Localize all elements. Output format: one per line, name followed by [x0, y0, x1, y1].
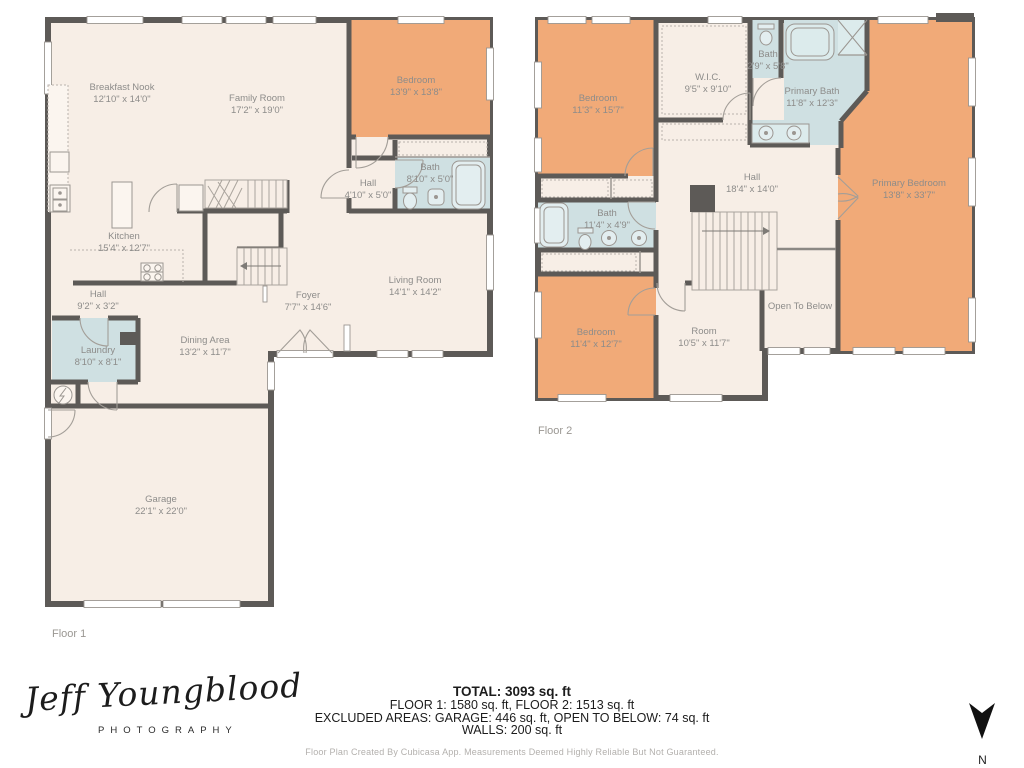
label-primary-bedroom: Primary Bedroom [872, 178, 946, 189]
label-laundry-dims: 8'10" x 8'1" [75, 357, 122, 368]
label-primary-bath: Primary Bath [785, 86, 840, 97]
label-breakfast-nook: Breakfast Nook [90, 82, 155, 93]
logo-subtitle: PHOTOGRAPHY [98, 725, 256, 736]
label-hall-f2-dims: 18'4" x 14'0" [726, 184, 778, 195]
label-bath-f1: Bath [420, 162, 440, 173]
compass-label: N [955, 753, 1010, 767]
label-family-room: Family Room [229, 93, 285, 104]
floor2-stairs [692, 212, 777, 290]
laundry-wall-notch [120, 332, 138, 345]
floor1-caption: Floor 1 [52, 628, 86, 640]
label-hall-f1: Hall [360, 178, 376, 189]
label-bedroom-tl-dims: 11'3" x 15'7" [572, 105, 623, 116]
label-dining-area-dims: 13'2" x 11'7" [179, 347, 230, 358]
photographer-logo: Jeff Youngblood PHOTOGRAPHY [26, 680, 256, 760]
label-bedroom-bl-dims: 11'4" x 12'7" [570, 339, 621, 350]
label-living-room: Living Room [389, 275, 442, 286]
label-breakfast-nook-dims: 12'10" x 14'0" [93, 94, 150, 105]
compass: N [955, 698, 1010, 760]
label-bath-f2-dims: 11'4" x 4'9" [584, 220, 630, 231]
label-hall2-f1: Hall [90, 289, 106, 300]
label-wic-dims: 9'5" x 9'10" [685, 84, 732, 95]
chimney-block [936, 13, 974, 22]
floor2-plan: Bedroom 11'3" x 15'7" W.I.C. 9'5" x 9'10… [535, 13, 976, 437]
label-family-room-dims: 17'2" x 19'0" [231, 105, 283, 116]
label-dining-area: Dining Area [180, 335, 230, 346]
floor1-plan: Breakfast Nook 12'10" x 14'0" Family Roo… [45, 17, 494, 641]
label-primary-bath-dims: 11'8" x 12'3" [786, 98, 837, 109]
label-bedroom-f1: Bedroom [397, 75, 436, 86]
label-hall-f2: Hall [744, 172, 760, 183]
label-wic: W.I.C. [695, 72, 721, 83]
label-bath-small-dims: 2'9" x 5'8" [747, 61, 789, 72]
floorplan-drawing: Breakfast Nook 12'10" x 14'0" Family Roo… [0, 0, 1024, 768]
label-room: Room [691, 326, 716, 337]
label-bedroom-bl: Bedroom [577, 327, 616, 338]
stair-newel-block [690, 185, 715, 212]
floorplan-page: Breakfast Nook 12'10" x 14'0" Family Roo… [0, 0, 1024, 768]
label-hall-f1-dims: 4'10" x 5'0" [345, 190, 392, 201]
label-garage-dims: 22'1" x 22'0" [135, 506, 187, 517]
north-arrow-icon [955, 698, 1010, 746]
label-kitchen-dims: 15'4" x 12'7" [98, 243, 150, 254]
label-bath-f2: Bath [597, 208, 617, 219]
label-living-room-dims: 14'1" x 14'2" [389, 287, 441, 298]
floor2-caption: Floor 2 [538, 425, 572, 437]
label-primary-bedroom-dims: 13'8" x 33'7" [883, 190, 935, 201]
label-foyer-dims: 7'7" x 14'6" [285, 302, 332, 313]
label-foyer: Foyer [296, 290, 320, 301]
label-kitchen: Kitchen [108, 231, 140, 242]
entry-wall-post [344, 325, 350, 351]
label-laundry: Laundry [81, 345, 116, 356]
label-bath-small: Bath [758, 49, 778, 60]
label-garage: Garage [145, 494, 177, 505]
label-open-to-below: Open To Below [768, 301, 832, 312]
label-hall2-f1-dims: 9'2" x 3'2" [77, 301, 119, 312]
label-bedroom-tl: Bedroom [579, 93, 618, 104]
stair-door-leaf [263, 286, 267, 302]
label-bath-f1-dims: 8'10" x 5'0" [407, 174, 454, 185]
label-bedroom-f1-dims: 13'9" x 13'8" [390, 87, 442, 98]
label-room-dims: 10'5" x 11'7" [678, 338, 729, 349]
